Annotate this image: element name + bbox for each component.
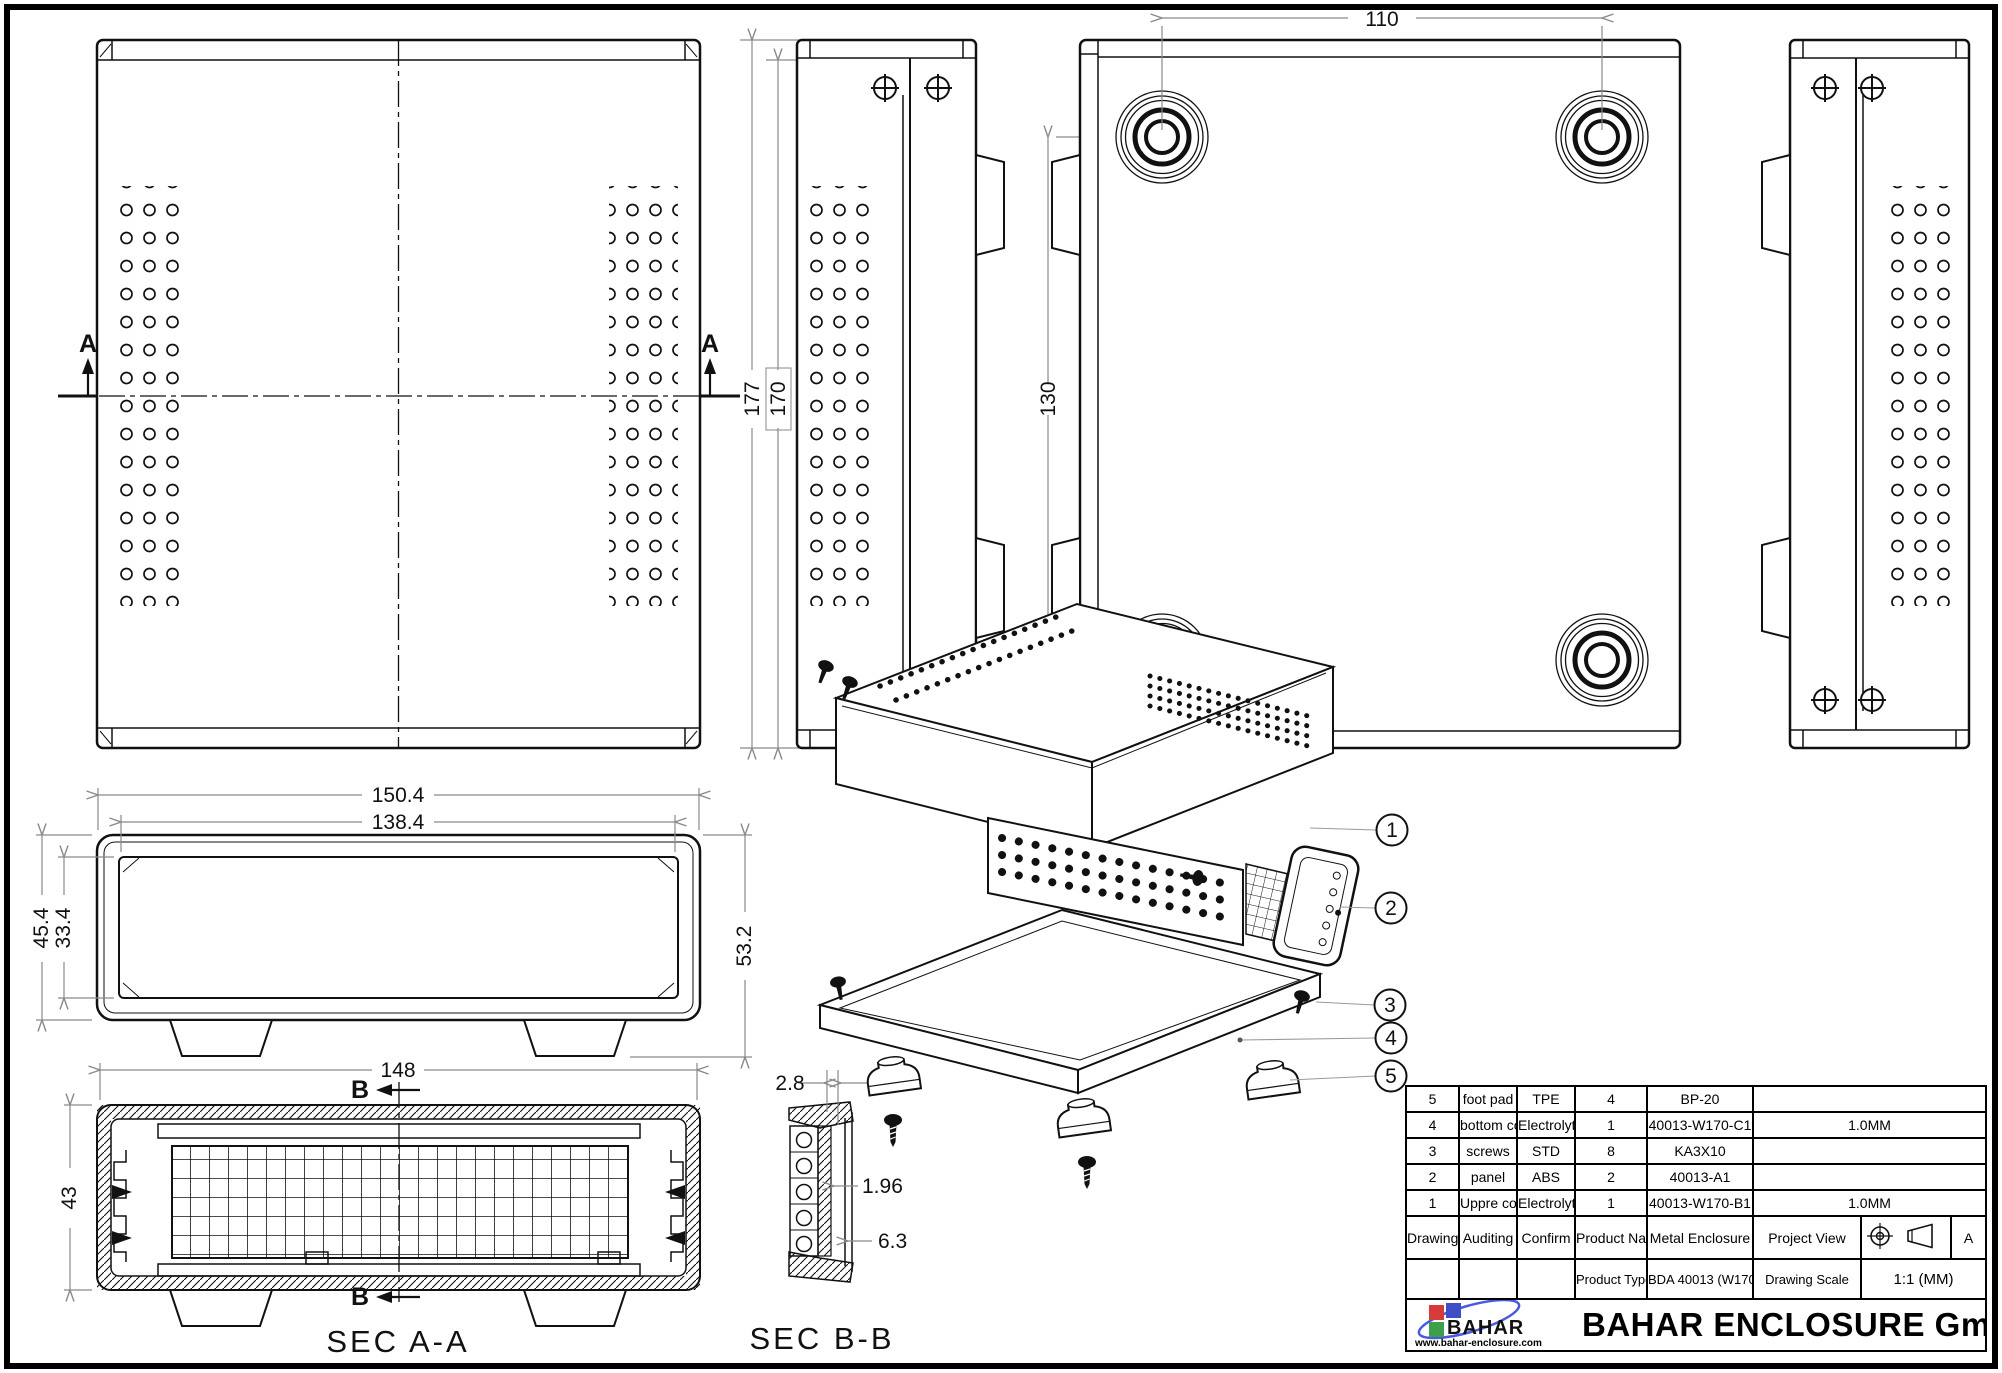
bom-material: Electrolytic sheet	[1517, 1190, 1575, 1216]
bom-spec: 40013-A1	[1647, 1164, 1753, 1190]
foot	[170, 1290, 272, 1326]
bom-no: 1	[1406, 1190, 1459, 1216]
bom-material: TPE	[1517, 1086, 1575, 1112]
svg-text:150.4: 150.4	[372, 784, 425, 807]
foot	[170, 1020, 272, 1056]
bom-spec: BP-20	[1647, 1086, 1753, 1112]
bom-material: STD	[1517, 1138, 1575, 1164]
svg-text:B: B	[351, 1076, 369, 1104]
title-header-row: Drawing Auditing Confirm Product Name Me…	[1406, 1216, 1986, 1259]
bom-row-3: 3 screws STD 8 KA3X10	[1406, 1138, 1986, 1164]
vent-grid-right	[609, 186, 678, 606]
svg-text:177: 177	[741, 381, 764, 416]
svg-text:4: 4	[1385, 1027, 1397, 1050]
logo-square-blue	[1446, 1303, 1461, 1318]
drawing-label: Drawing	[1406, 1216, 1459, 1259]
mount-tab	[976, 538, 1004, 638]
svg-text:5: 5	[1385, 1065, 1397, 1088]
section-marker-a-right: A	[701, 330, 719, 396]
mount-tab	[1762, 538, 1790, 638]
view-sec-bb: SEC B-B	[749, 1102, 894, 1356]
bom-row-5: 5 foot pad TPE 4 BP-20	[1406, 1086, 1986, 1112]
signature-cell	[1459, 1259, 1517, 1299]
foot	[524, 1020, 626, 1056]
sec-aa-title: SEC A-A	[326, 1324, 469, 1359]
svg-text:138.4: 138.4	[372, 811, 425, 834]
bom-name: foot pad	[1459, 1086, 1517, 1112]
bom-note: 1.0MM	[1753, 1112, 1986, 1138]
view-front	[97, 835, 700, 1056]
svg-text:A: A	[701, 330, 719, 358]
drawing-scale-value: 1:1 (MM)	[1861, 1259, 1986, 1299]
bom-no: 5	[1406, 1086, 1459, 1112]
product-name-label: Product Name	[1575, 1216, 1647, 1259]
bahar-logo: BAHAR www.bahar-enclosure.com	[1407, 1300, 1582, 1350]
product-name-value: Metal Enclosure	[1647, 1216, 1753, 1259]
bom-material: Electrolytic sheet	[1517, 1112, 1575, 1138]
bom-name: panel	[1459, 1164, 1517, 1190]
svg-text:110: 110	[1365, 8, 1398, 31]
svg-text:43: 43	[58, 1186, 81, 1209]
bom-qty: 8	[1575, 1138, 1647, 1164]
svg-text:170: 170	[767, 381, 790, 416]
first-angle-projection-icon	[1864, 1221, 1948, 1251]
view-side-left	[797, 40, 1004, 748]
svg-text:53.2: 53.2	[733, 926, 756, 967]
bom-note	[1753, 1138, 1986, 1164]
vent-grid	[1888, 186, 1957, 606]
drawing-scale-label: Drawing Scale	[1753, 1259, 1861, 1299]
bom-material: ABS	[1517, 1164, 1575, 1190]
confirm-label: Confirm	[1517, 1216, 1575, 1259]
project-view-label: Project View	[1753, 1216, 1861, 1259]
section-marker-a-left: A	[79, 330, 97, 396]
mount-tab	[976, 155, 1004, 255]
svg-text:B: B	[351, 1283, 369, 1311]
vent-grid	[809, 186, 878, 606]
bom-qty: 2	[1575, 1164, 1647, 1190]
bom-spec: 40013-W170-B1	[1647, 1190, 1753, 1216]
website-url: www.bahar-enclosure.com	[1415, 1338, 1542, 1349]
projection-symbol-cell	[1861, 1216, 1951, 1259]
title-block: 5 foot pad TPE 4 BP-20 4 bottom cover El…	[1405, 1085, 1985, 1352]
auditing-label: Auditing	[1459, 1216, 1517, 1259]
bom-qty: 1	[1575, 1112, 1647, 1138]
product-type-label: Product Type	[1575, 1259, 1647, 1299]
svg-text:2.8: 2.8	[775, 1072, 804, 1095]
bom-note	[1753, 1164, 1986, 1190]
svg-text:1: 1	[1386, 819, 1398, 842]
bom-spec: KA3X10	[1647, 1138, 1753, 1164]
bom-qty: 4	[1575, 1086, 1647, 1112]
latch-profile-left	[114, 1150, 126, 1262]
bom-no: 4	[1406, 1112, 1459, 1138]
view-exploded: 1 2 3 4 5	[812, 604, 1407, 1189]
bom-row-4: 4 bottom cover Electrolytic sheet 1 4001…	[1406, 1112, 1986, 1138]
bom-row-2: 2 panel ABS 2 40013-A1	[1406, 1164, 1986, 1190]
bom-name: screws	[1459, 1138, 1517, 1164]
view-side-right	[1762, 40, 1969, 748]
svg-text:A: A	[79, 330, 97, 358]
bom-no: 2	[1406, 1164, 1459, 1190]
logo-square-red	[1429, 1305, 1444, 1320]
dims-sec-bb: 2.8 1.96 6.3	[775, 1070, 907, 1253]
sec-bb-title: SEC B-B	[749, 1321, 894, 1356]
title-type-row: Product Type BDA 40013 (W170) Drawing Sc…	[1406, 1259, 1986, 1299]
bom-spec: 40013-W170-C1	[1647, 1112, 1753, 1138]
view-code: A	[1951, 1216, 1986, 1259]
mesh-grid	[172, 1146, 628, 1258]
vent-grid-left	[116, 186, 185, 606]
svg-text:2: 2	[1385, 897, 1397, 920]
bom-note: 1.0MM	[1753, 1190, 1986, 1216]
drawing-sheet: A A 177 170 130	[0, 0, 2002, 1373]
product-type-value: BDA 40013 (W170)	[1647, 1259, 1753, 1299]
bom-table: 5 foot pad TPE 4 BP-20 4 bottom cover El…	[1405, 1085, 1987, 1352]
svg-text:130: 130	[1037, 381, 1060, 416]
svg-text:1.96: 1.96	[862, 1175, 903, 1198]
svg-text:3: 3	[1384, 994, 1396, 1017]
svg-text:6.3: 6.3	[878, 1230, 907, 1253]
view-sec-aa: B B SEC A-A	[97, 1076, 700, 1359]
company-name: BAHAR ENCLOSURE GmbH	[1582, 1306, 1986, 1344]
view-rear: A A	[58, 40, 740, 748]
bom-name: Uppre cover	[1459, 1190, 1517, 1216]
signature-cell	[1517, 1259, 1575, 1299]
dim-side-heights: 177 170	[740, 40, 800, 748]
bom-name: bottom cover	[1459, 1112, 1517, 1138]
logo-row: BAHAR www.bahar-enclosure.com BAHAR ENCL…	[1406, 1299, 1986, 1351]
latch-profile-right	[671, 1150, 683, 1262]
foot	[524, 1290, 626, 1326]
mount-tab	[1762, 155, 1790, 255]
logo-text: BAHAR	[1447, 1317, 1524, 1339]
logo-square-green	[1429, 1322, 1444, 1337]
svg-text:33.4: 33.4	[52, 907, 75, 948]
mount-tab	[1052, 155, 1080, 255]
signature-cell	[1406, 1259, 1459, 1299]
svg-text:45.4: 45.4	[30, 907, 53, 948]
svg-text:148: 148	[380, 1059, 415, 1082]
bom-qty: 1	[1575, 1190, 1647, 1216]
bom-no: 3	[1406, 1138, 1459, 1164]
bom-row-1: 1 Uppre cover Electrolytic sheet 1 40013…	[1406, 1190, 1986, 1216]
bom-note	[1753, 1086, 1986, 1112]
